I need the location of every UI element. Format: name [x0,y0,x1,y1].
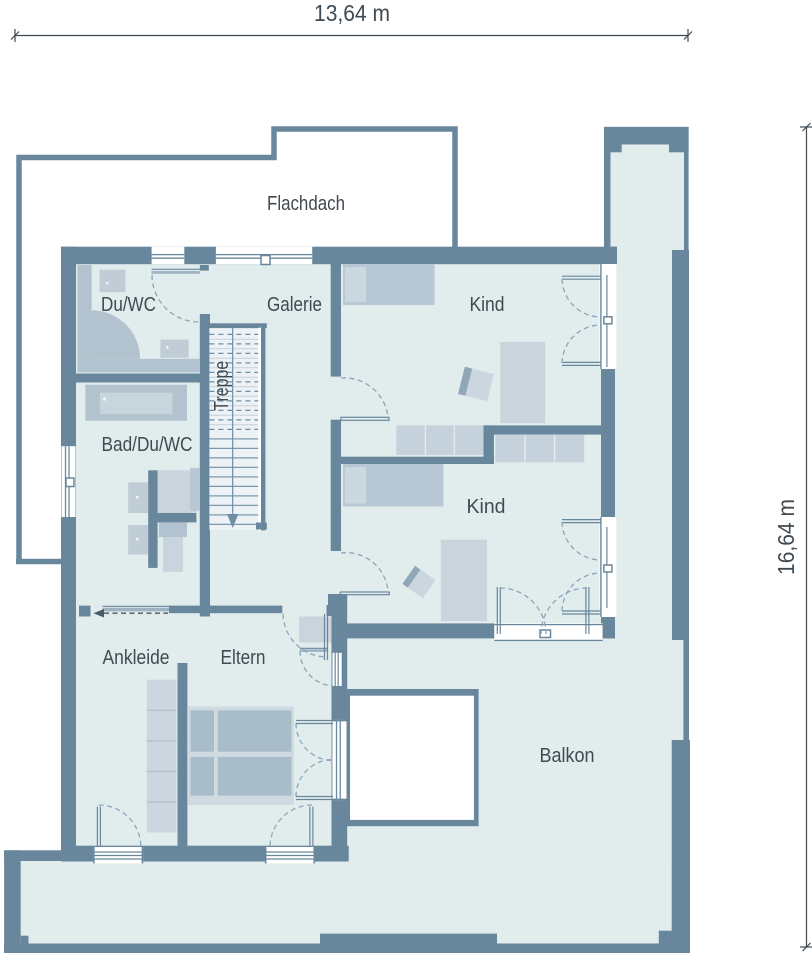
svg-text:13,64 m: 13,64 m [314,0,390,26]
svg-text:Bad/Du/WC: Bad/Du/WC [102,434,193,456]
svg-text:Kind: Kind [470,294,505,316]
svg-text:Galerie: Galerie [267,294,322,316]
svg-text:Balkon: Balkon [540,745,595,767]
svg-text:Du/WC: Du/WC [101,294,156,316]
svg-text:Flachdach: Flachdach [267,193,345,215]
svg-text:Treppe: Treppe [211,361,233,411]
svg-text:Eltern: Eltern [221,647,266,669]
svg-text:16,64 m: 16,64 m [773,499,799,575]
svg-text:Ankleide: Ankleide [103,647,170,669]
svg-text:Kind: Kind [467,496,506,518]
